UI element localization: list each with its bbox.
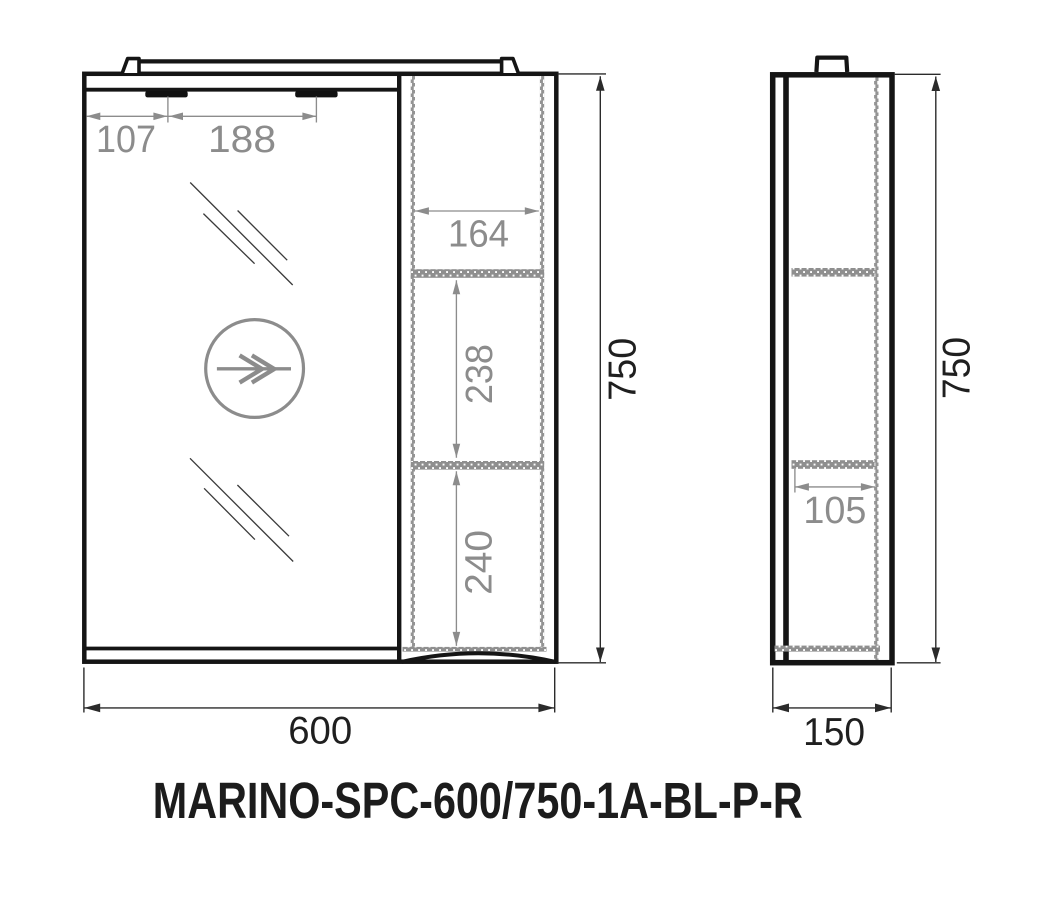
svg-text:150: 150 <box>803 711 865 754</box>
svg-text:750: 750 <box>936 337 979 399</box>
svg-text:188: 188 <box>208 119 276 161</box>
svg-text:164: 164 <box>448 213 509 255</box>
svg-text:240: 240 <box>459 530 501 595</box>
svg-text:107: 107 <box>96 119 156 161</box>
svg-text:MARINO-SPC-600/750-1A-BL-P-R: MARINO-SPC-600/750-1A-BL-P-R <box>153 772 803 829</box>
svg-text:238: 238 <box>459 344 501 404</box>
svg-text:750: 750 <box>601 338 644 401</box>
svg-text:105: 105 <box>803 490 866 532</box>
svg-text:600: 600 <box>288 710 352 753</box>
